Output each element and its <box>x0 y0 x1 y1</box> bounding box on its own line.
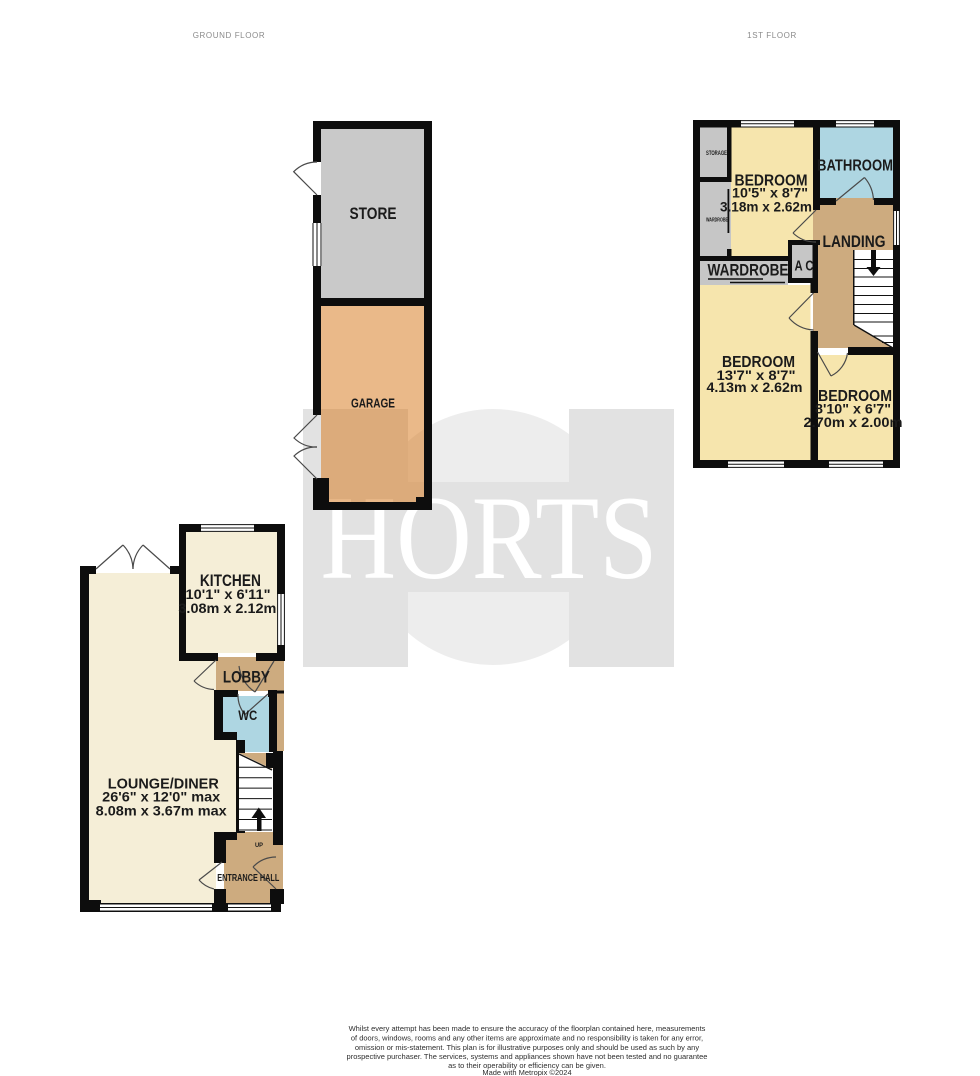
svg-text:3.18m x 2.62m: 3.18m x 2.62m <box>720 198 812 214</box>
svg-text:prospective purchaser. The ser: prospective purchaser. The services, sys… <box>347 1052 708 1061</box>
svg-text:GARAGE: GARAGE <box>351 397 395 411</box>
svg-text:BATHROOM: BATHROOM <box>817 157 893 174</box>
svg-text:LOBBY: LOBBY <box>223 668 270 686</box>
svg-text:WARDROBE: WARDROBE <box>706 218 728 224</box>
svg-text:1ST FLOOR: 1ST FLOOR <box>747 31 797 40</box>
svg-text:WC: WC <box>238 707 257 723</box>
svg-text:8.08m x 3.67m max: 8.08m x 3.67m max <box>96 802 227 818</box>
svg-text:Whilst every attempt has been: Whilst every attempt has been made to en… <box>349 1024 706 1033</box>
svg-text:STORAGE: STORAGE <box>706 151 727 157</box>
svg-text:Made with Metropix ©2024: Made with Metropix ©2024 <box>482 1068 571 1076</box>
svg-text:LANDING: LANDING <box>823 232 886 251</box>
svg-text:ENTRANCE HALL: ENTRANCE HALL <box>217 873 279 884</box>
svg-text:omission or mis-statement. Thi: omission or mis-statement. This plan is … <box>355 1043 699 1052</box>
svg-text:of doors, windows, rooms and a: of doors, windows, rooms and any other i… <box>351 1033 703 1042</box>
svg-text:3.08m x 2.12m: 3.08m x 2.12m <box>178 600 276 616</box>
svg-text:A C: A C <box>795 259 814 275</box>
svg-text:4.13m x 2.62m: 4.13m x 2.62m <box>707 379 803 395</box>
svg-text:2.70m x 2.00m: 2.70m x 2.00m <box>804 414 903 430</box>
svg-text:STORE: STORE <box>350 204 397 223</box>
svg-text:GROUND FLOOR: GROUND FLOOR <box>193 31 266 40</box>
svg-text:WARDROBE: WARDROBE <box>708 261 789 279</box>
svg-text:UP: UP <box>255 843 263 849</box>
